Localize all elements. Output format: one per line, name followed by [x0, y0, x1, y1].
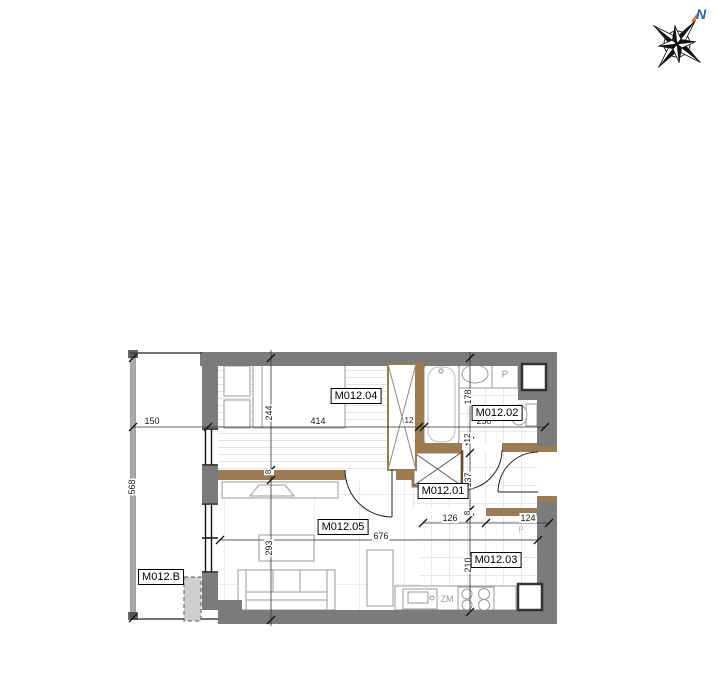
- floor-plan-drawing: [0, 0, 717, 682]
- sink-label: ZM: [441, 594, 454, 604]
- north-label: N: [696, 6, 706, 22]
- wall-bottom-notch: [218, 600, 242, 612]
- dim-bedroom-depth: 244: [264, 404, 274, 421]
- room-label-kitchen: M012.03: [471, 552, 522, 568]
- dim-balcony-width: 150: [143, 416, 160, 426]
- nightstand-top: [224, 366, 250, 396]
- dim-wall-mid-c: 8: [463, 510, 473, 516]
- floor-plan-canvas: M012.04 M012.02 M012.01 M012.05 M012.03 …: [0, 0, 717, 682]
- dim-living-width: 676: [372, 531, 389, 541]
- wall-left-b: [202, 466, 218, 503]
- sofa: [238, 570, 335, 610]
- dim-wall-mid-a: 8: [264, 469, 274, 475]
- dim-bedroom-width: 414: [309, 416, 326, 426]
- washer-label: P: [502, 370, 509, 381]
- living-window: [202, 503, 218, 573]
- dim-bathroom-depth: 178: [463, 388, 473, 405]
- wall-top: [200, 352, 557, 366]
- kitchen-island: [367, 550, 393, 606]
- wall-left-a: [202, 352, 218, 428]
- balcony-door: [202, 428, 218, 466]
- dim-living-depth: 293: [264, 539, 274, 556]
- balcony-storage-dashed: [184, 577, 201, 621]
- bathtub: [424, 363, 459, 446]
- dim-balcony-height: 568: [127, 478, 137, 495]
- shaft-hall: [413, 452, 462, 486]
- room-label-hall: M012.01: [418, 483, 469, 499]
- room-label-living: M012.05: [318, 519, 369, 535]
- cooktop: [458, 587, 494, 611]
- shaft-kitchen: [518, 584, 542, 610]
- room-label-balcony: M012.B: [138, 569, 184, 585]
- kitchen-faint-mark: P: [518, 526, 523, 535]
- dim-wall-mid-b: 12: [463, 433, 473, 444]
- nightstand-bottom: [224, 400, 250, 428]
- dim-kitchen-seg-left: 126: [441, 513, 458, 523]
- wall-left-c: [202, 573, 218, 610]
- room-label-bedroom: M012.04: [331, 388, 382, 404]
- dim-kitchen-seg-right: 124: [519, 513, 536, 523]
- room-label-bathroom: M012.02: [472, 405, 523, 421]
- dim-wall-top: 12: [404, 416, 415, 426]
- shaft-bathroom: [522, 364, 546, 390]
- kitchen-sink: [403, 589, 437, 609]
